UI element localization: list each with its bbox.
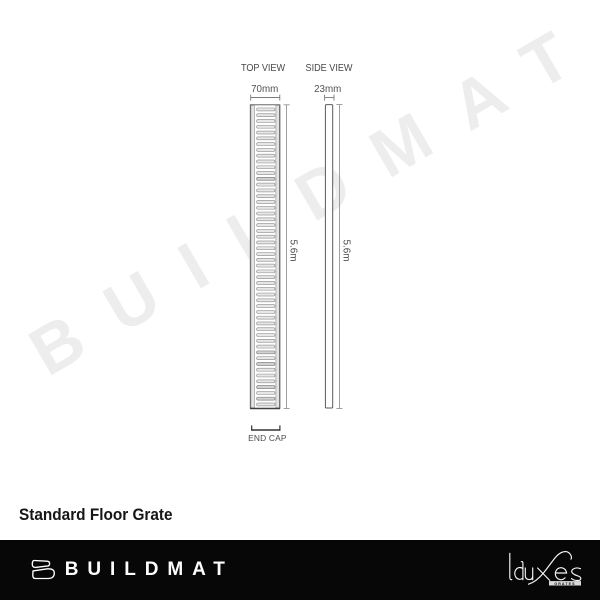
svg-text:GRATES: GRATES [554, 582, 575, 586]
